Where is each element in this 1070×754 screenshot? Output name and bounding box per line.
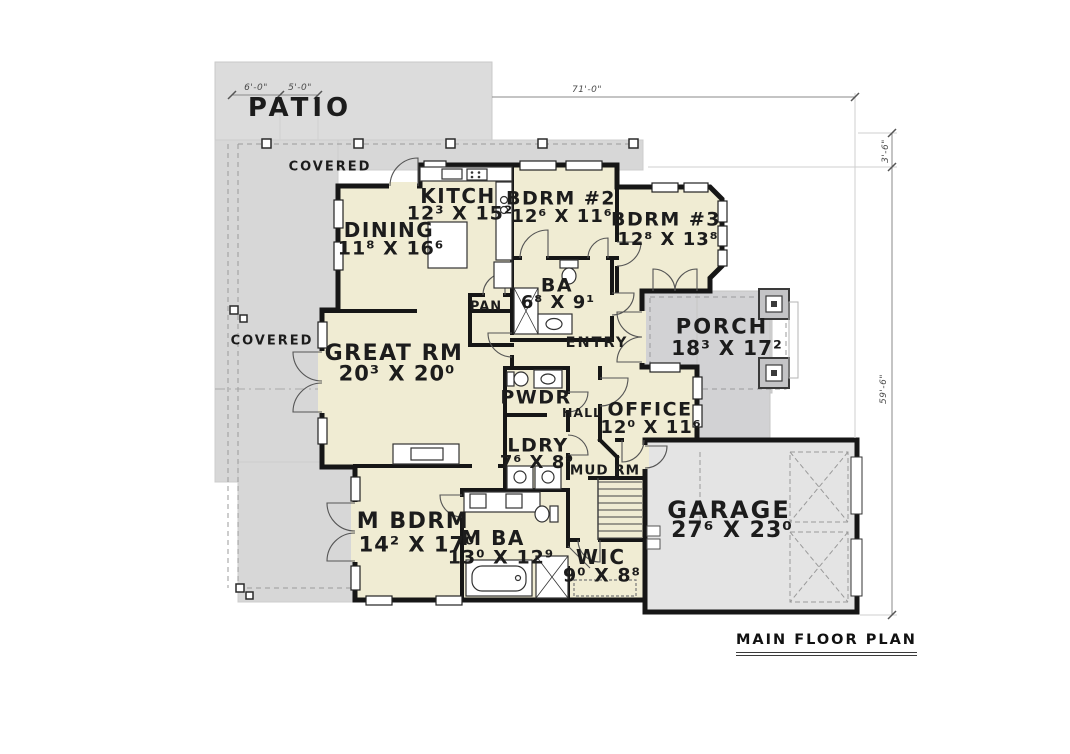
ba-sink [546,319,562,330]
room-label-hall: HALL [562,407,602,420]
plan-title: MAIN FLOOR PLAN [736,632,917,656]
room-label-bdrm3: BDRM #3 [611,211,721,230]
fridge [494,262,512,288]
mba-sink-left [470,494,486,508]
mba-toilet [535,506,549,522]
room-dims-dining: 11⁸ X 16⁶ [338,240,444,259]
covered-bottom-area [238,462,355,602]
garage-door-top [851,457,862,514]
room-label-porch: PORCH [676,317,768,338]
room-dims-ba: 6⁸ X 9¹ [521,294,595,312]
dim-label-right-offset: 3'-6" [881,139,891,163]
pwdr-toilet [514,372,528,386]
mba-sink-right [506,494,522,508]
dim-label-width-total: 71'-0" [572,85,602,95]
dim-label-patio-inner: 5'-0" [288,83,312,93]
fireplace-insert [411,448,443,460]
room-dims-great-rm: 20³ X 20⁰ [339,364,456,385]
room-dims-office: 12⁰ X 11⁶ [600,419,701,437]
room-dims-garage: 27⁶ X 23⁰ [671,520,793,542]
room-dims-bdrm3: 12⁸ X 13⁸ [617,231,718,249]
ba-toilet-tank [560,260,578,268]
room-label-mud: MUD RM [570,464,640,478]
room-label-covered-top: COVERED [289,161,372,174]
pwdr-toilet-tank [507,372,514,386]
cooktop [467,169,487,180]
pwdr-sink [541,374,555,384]
room-dims-porch: 18³ X 17² [671,338,783,358]
kitchen-sink [442,169,462,179]
kitchen-counter [420,167,512,181]
room-dims-ldry: 7⁶ X 8⁹ [500,454,574,472]
room-label-m-bdrm: M BDRM [357,511,469,533]
room-label-patio: PATIO [248,95,352,121]
room-dims-wic: 9⁰ X 8⁸ [563,567,641,586]
room-dims-bdrm2: 12⁶ X 11⁶ [511,208,612,226]
room-dims-m-ba: 13⁰ X 12⁹ [448,549,554,568]
garage-door-bottom [851,539,862,596]
dim-label-patio-depth: 6'-0" [244,83,268,93]
dim-label-height-main: 59'-6" [879,374,889,404]
room-label-entry: ENTRY [566,336,629,351]
room-label-m-ba: M BA [461,528,525,548]
mba-toilet-tank [550,506,558,522]
floor-plan-page: PATIO COVERED COVERED KITCH 12³ X 15² DI… [0,0,1070,754]
room-label-pwdr: PWDR [500,389,571,408]
room-label-covered-left: COVERED [231,335,314,348]
room-label-pan: PAN [470,301,502,314]
